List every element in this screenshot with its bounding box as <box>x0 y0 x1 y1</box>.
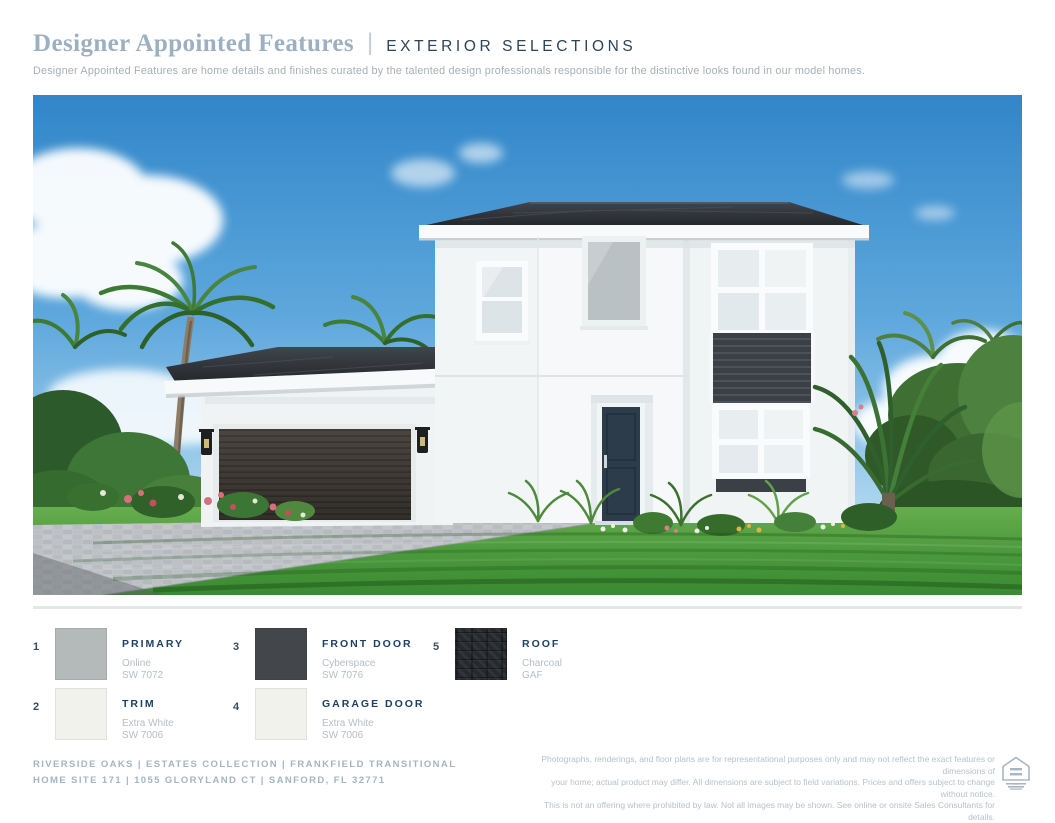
equal-housing-icon <box>1002 756 1030 790</box>
swatch-text: TRIM Extra White SW 7006 <box>122 688 174 742</box>
swatch-color-chip <box>55 628 107 680</box>
swatch-color-chip <box>455 628 507 680</box>
swatch-label: FRONT DOOR <box>322 638 413 650</box>
swatch-color-name: Online <box>122 658 184 670</box>
house-rendering <box>33 95 1022 595</box>
swatch-color-name: Extra White <box>122 718 174 730</box>
swatch-text: GARAGE DOOR Extra White SW 7006 <box>322 688 425 742</box>
community-line1: RIVERSIDE OAKS | ESTATES COLLECTION | FR… <box>33 757 456 773</box>
page-footer: RIVERSIDE OAKS | ESTATES COLLECTION | FR… <box>0 750 1055 810</box>
swatch-item: 5 ROOF Charcoal GAF <box>433 628 633 688</box>
swatch-color-name: Extra White <box>322 718 425 730</box>
swatch-text: FRONT DOOR Cyberspace SW 7076 <box>322 628 413 682</box>
disclaimer-line2: your home; actual product may differ. Al… <box>525 777 995 800</box>
swatch-number: 3 <box>233 628 255 653</box>
section-divider <box>33 606 1022 609</box>
disclaimer-line1: Photographs, renderings, and floor plans… <box>525 754 995 777</box>
community-line2: HOME SITE 171 | 1055 GLORYLAND CT | SANF… <box>33 773 456 789</box>
swatch-grid: 1 PRIMARY Online SW 7072 2 TRIM Extra Wh… <box>33 628 633 748</box>
swatch-color-code: SW 7006 <box>322 730 425 742</box>
swatch-color-name: Charcoal <box>522 658 562 670</box>
swatch-color-code: GAF <box>522 670 562 682</box>
swatch-label: TRIM <box>122 698 174 710</box>
swatch-color-code: SW 7072 <box>122 670 184 682</box>
house-rendering-svg <box>33 95 1022 595</box>
swatch-number: 2 <box>33 688 55 713</box>
legal-disclaimer: Photographs, renderings, and floor plans… <box>525 754 995 823</box>
swatch-item: 4 GARAGE DOOR Extra White SW 7006 <box>233 688 433 748</box>
swatch-color-name: Cyberspace <box>322 658 413 670</box>
swatch-color-code: SW 7006 <box>122 730 174 742</box>
swatch-label: PRIMARY <box>122 638 184 650</box>
page-subtitle: EXTERIOR SELECTIONS <box>386 38 636 56</box>
swatch-item: 2 TRIM Extra White SW 7006 <box>33 688 233 748</box>
community-info: RIVERSIDE OAKS | ESTATES COLLECTION | FR… <box>33 757 456 789</box>
swatch-number: 1 <box>33 628 55 653</box>
page-header: Designer Appointed Features | EXTERIOR S… <box>33 30 1023 77</box>
front-entry <box>591 395 653 525</box>
swatch-color-code: SW 7076 <box>322 670 413 682</box>
swatch-text: ROOF Charcoal GAF <box>522 628 562 682</box>
swatch-label: ROOF <box>522 638 562 650</box>
disclaimer-line3: This is not an offering where prohibited… <box>525 800 995 823</box>
title-divider: | <box>367 29 373 57</box>
swatch-item: 1 PRIMARY Online SW 7072 <box>33 628 233 688</box>
dark-siding-panel <box>711 333 813 403</box>
swatch-color-chip <box>255 628 307 680</box>
tower-frosted-window <box>580 236 648 330</box>
title-row: Designer Appointed Features | EXTERIOR S… <box>33 30 1023 58</box>
swatch-text: PRIMARY Online SW 7072 <box>122 628 184 682</box>
page-description: Designer Appointed Features are home det… <box>33 65 1023 77</box>
swatch-color-chip <box>255 688 307 740</box>
right-window-stack <box>709 243 815 492</box>
main-house <box>419 202 869 525</box>
swatch-label: GARAGE DOOR <box>322 698 425 710</box>
swatch-number: 5 <box>433 628 455 653</box>
page-title: Designer Appointed Features <box>33 30 354 58</box>
upper-left-window <box>474 261 530 345</box>
designer-features-page: Designer Appointed Features | EXTERIOR S… <box>0 0 1055 815</box>
swatch-item: 3 FRONT DOOR Cyberspace SW 7076 <box>233 628 433 688</box>
swatch-color-chip <box>55 688 107 740</box>
swatch-number: 4 <box>233 688 255 713</box>
